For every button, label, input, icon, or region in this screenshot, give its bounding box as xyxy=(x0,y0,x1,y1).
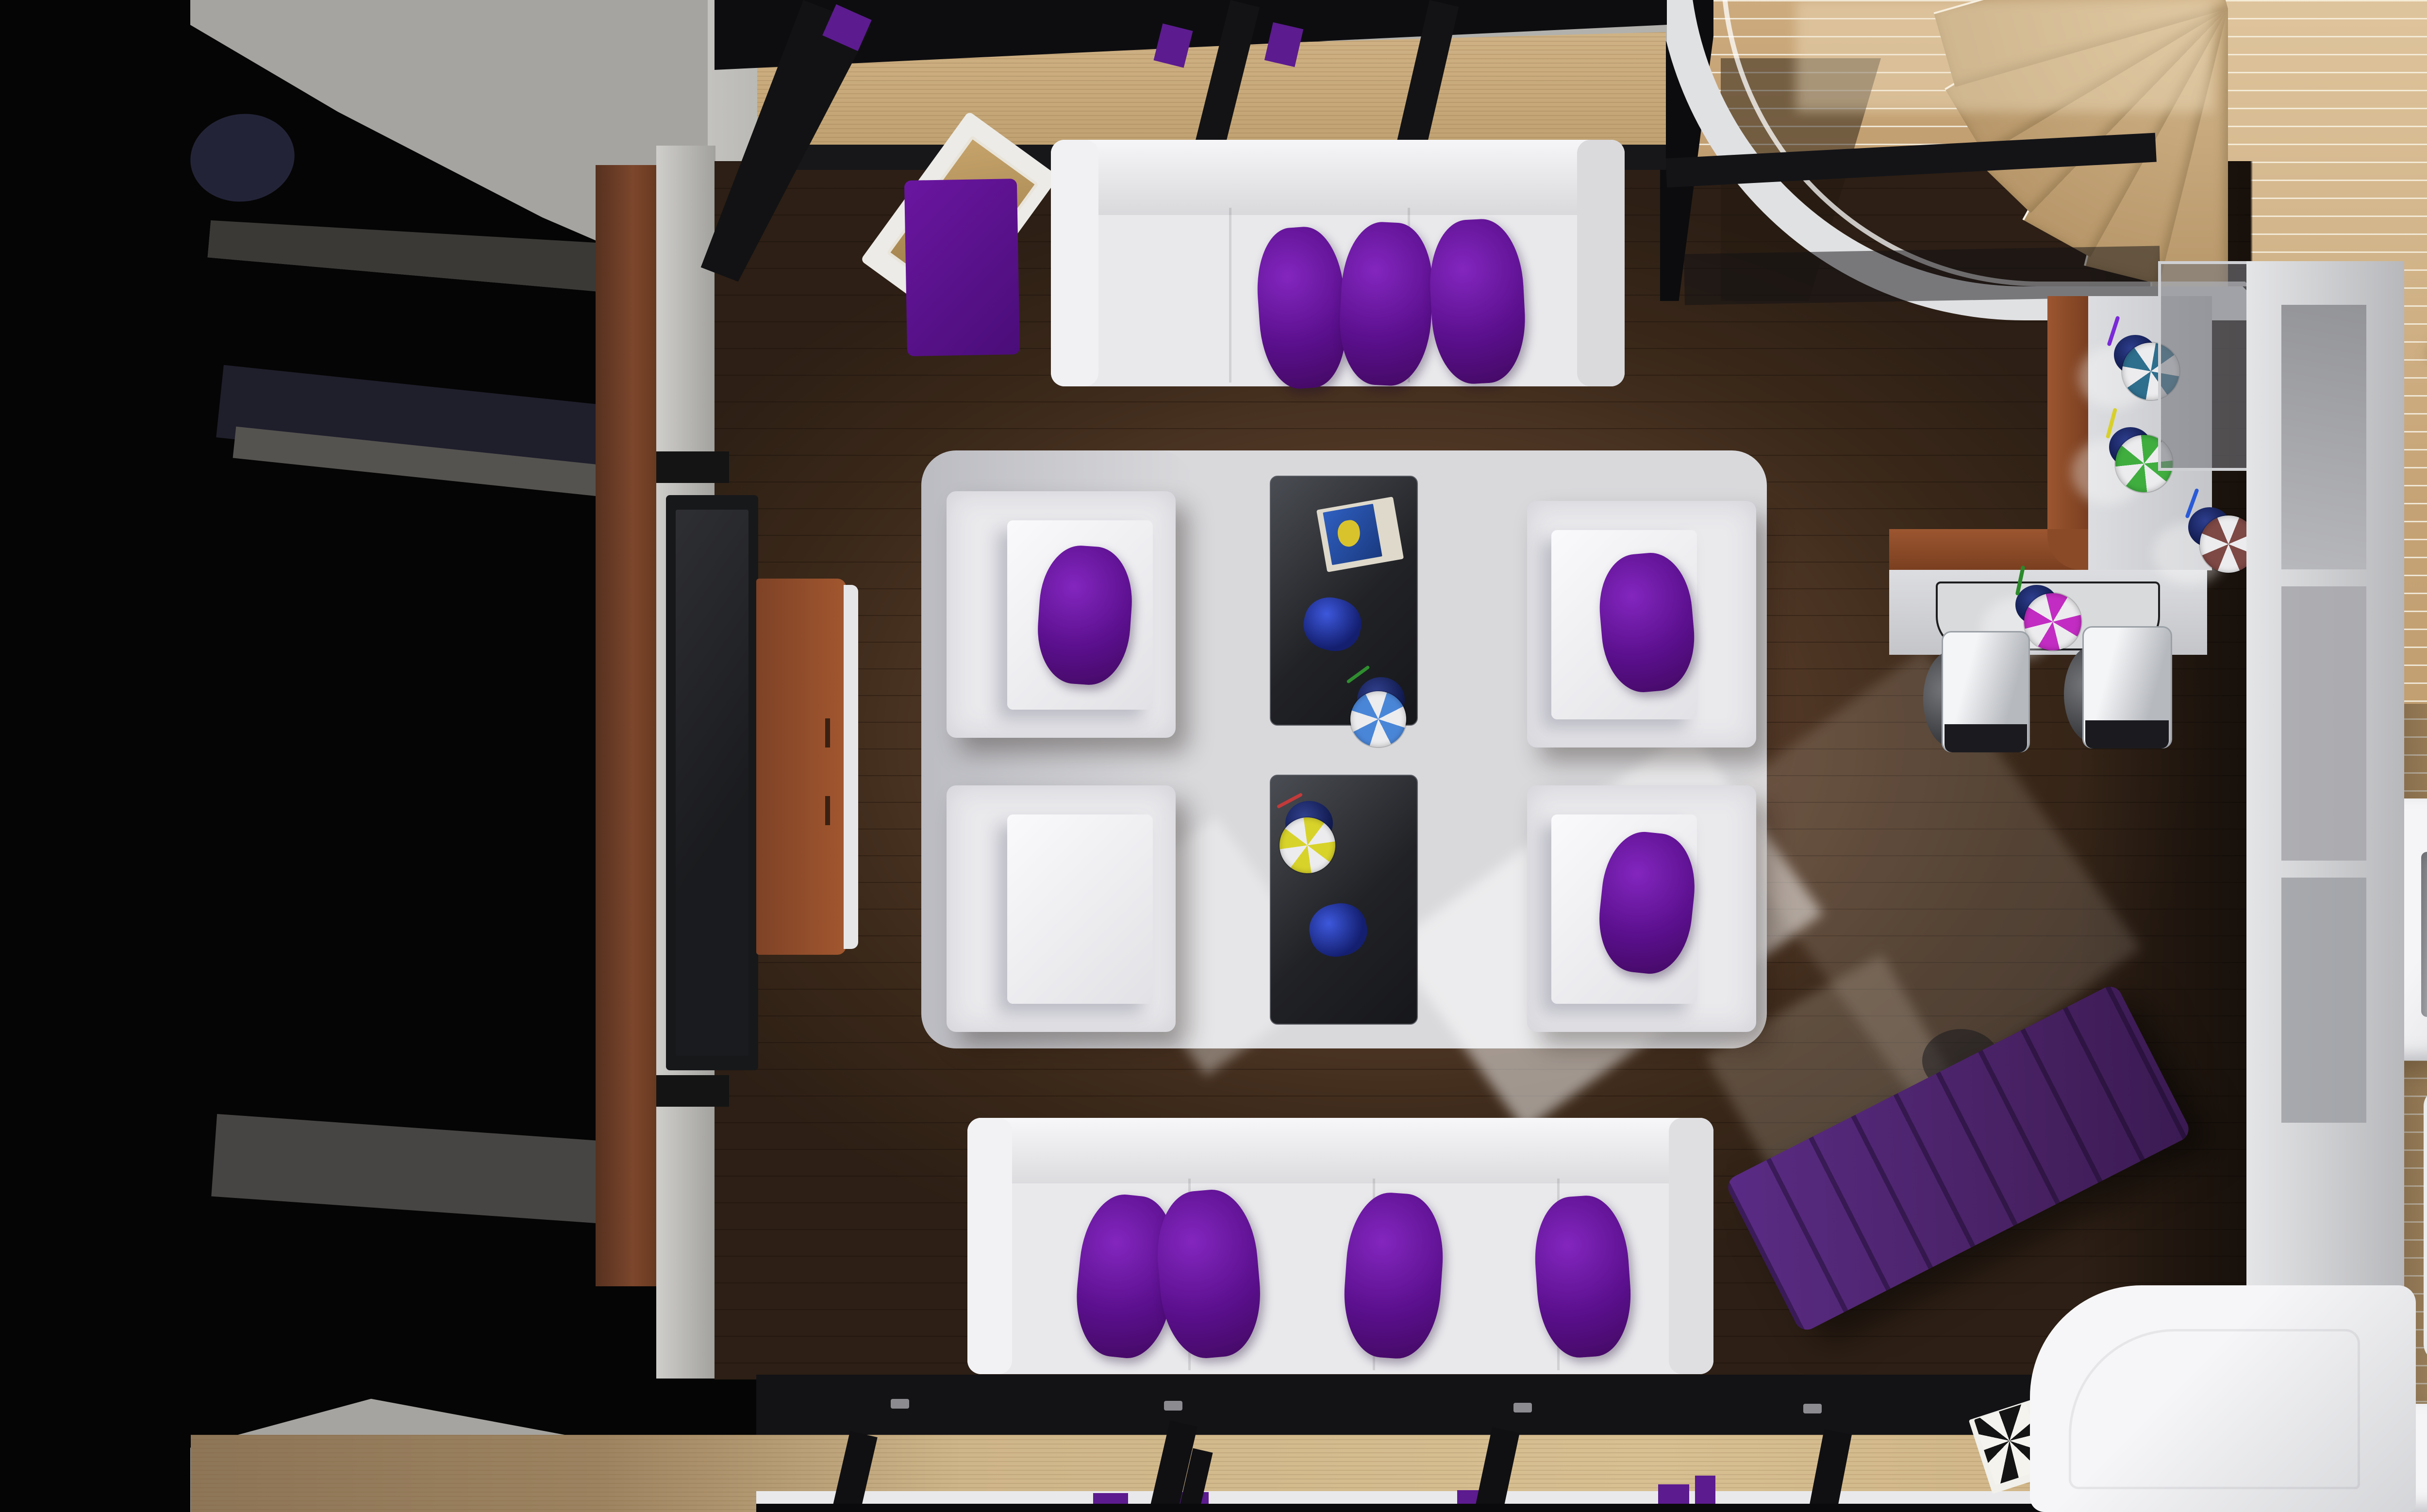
bar-stool-base xyxy=(2085,720,2169,748)
sofa-seam xyxy=(1229,208,1231,382)
deck-coffee-table xyxy=(2424,1089,2427,1362)
tv-bracket xyxy=(656,451,729,483)
gunwale-edge xyxy=(756,1504,2164,1512)
aft-cabinet-band xyxy=(756,1375,2157,1438)
cabinet-handle xyxy=(825,796,830,825)
stairs-top-glow xyxy=(1796,0,2213,112)
corner-settee-seam xyxy=(2069,1329,2360,1489)
bow-windshield xyxy=(185,107,300,208)
aft-door-panel xyxy=(2281,586,2366,861)
bar-stool-base xyxy=(1945,724,2027,752)
armchair-seat xyxy=(1007,814,1153,1004)
port-hull-black xyxy=(0,0,191,1512)
yacht-saloon-top-view: THE DIVINE COMEDYCRIME AND PUNISHMENTFYO… xyxy=(0,0,2427,1512)
sofa-aft-back xyxy=(967,1118,1713,1183)
tv-cabinet xyxy=(756,579,846,955)
aft-door-panel xyxy=(2281,878,2366,1123)
cabinet-latch xyxy=(1803,1404,1822,1413)
sofa-forward-arm xyxy=(1051,140,1098,386)
sofa-aft-arm xyxy=(967,1118,1012,1374)
cabinet-handle xyxy=(825,718,830,748)
sofa-forward-arm xyxy=(1577,140,1625,386)
forward-bulkhead-wood xyxy=(596,165,658,1286)
cabinet-latch xyxy=(1513,1403,1532,1412)
tv-cabinet-edge xyxy=(844,585,858,949)
tv-screen xyxy=(676,510,748,1056)
purple-throw xyxy=(904,179,1020,356)
aft-door-panel xyxy=(2281,305,2366,569)
cabinet-latch xyxy=(891,1399,909,1409)
aft-door-glass xyxy=(2158,261,2255,471)
deck-lounge-chair-seat xyxy=(2421,852,2427,1017)
sofa-aft-arm xyxy=(1669,1118,1713,1374)
cabinet-latch xyxy=(1164,1401,1182,1411)
tv-bracket xyxy=(656,1075,729,1107)
sofa-forward-back xyxy=(1051,140,1625,215)
